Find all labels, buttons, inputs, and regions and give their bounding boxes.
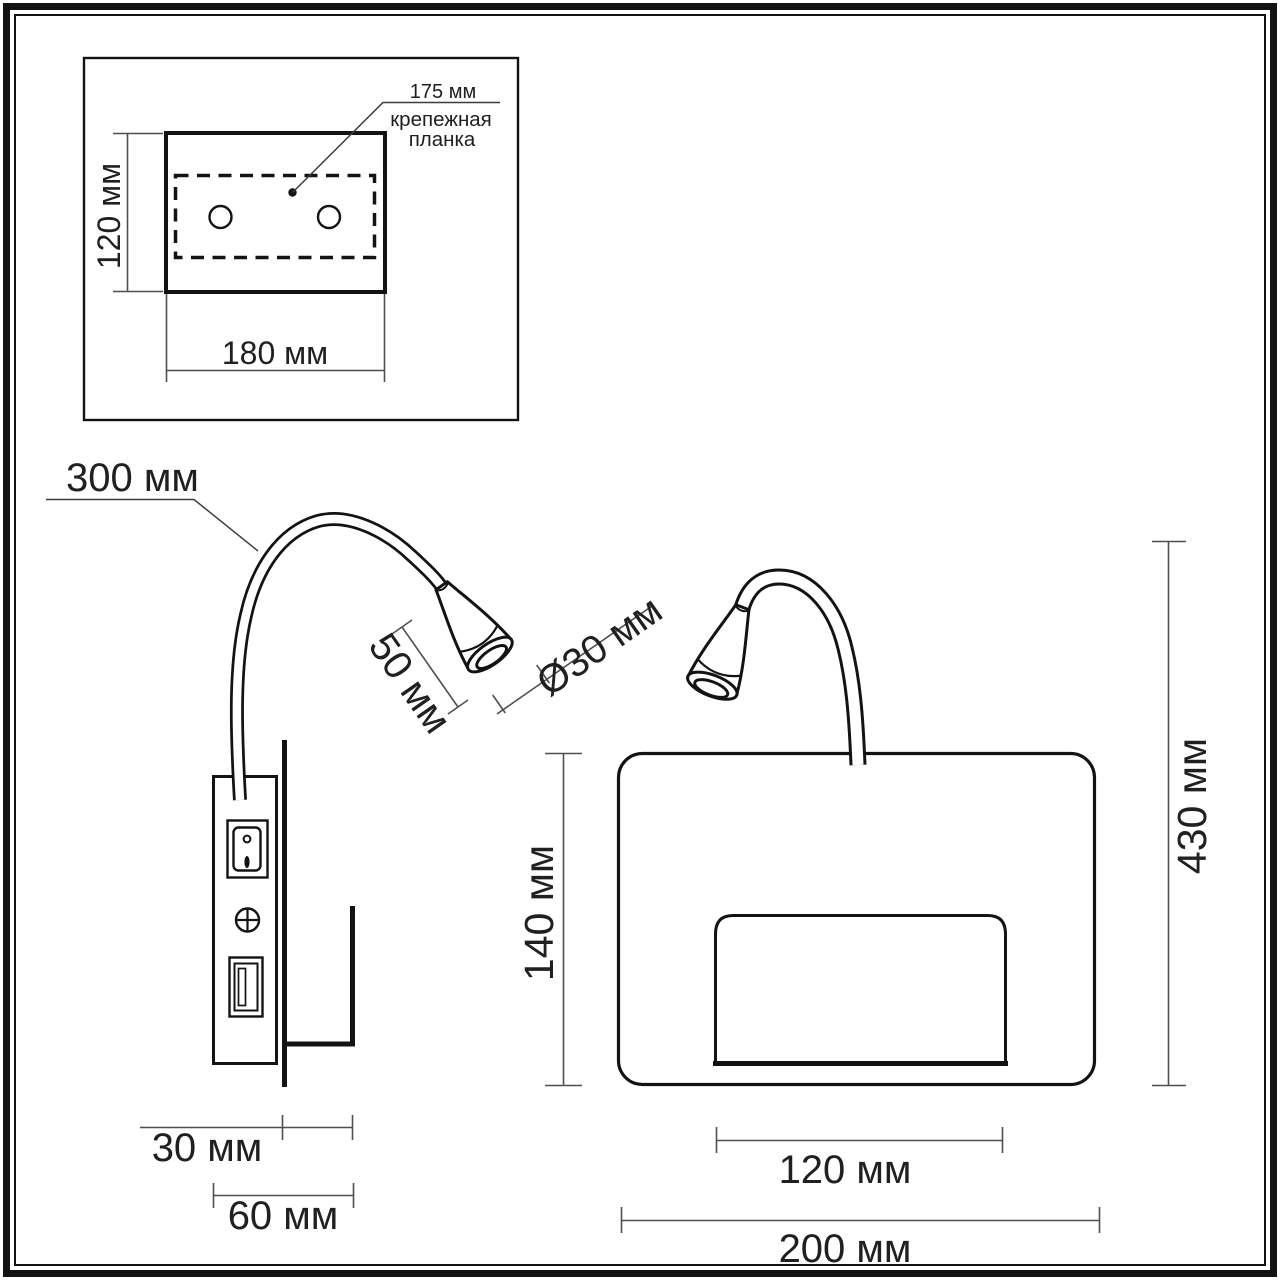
front-lamp-head [684,598,767,705]
overall-height-label: 430 мм [1169,738,1215,874]
body-width-dimension: 200 мм [621,1207,1100,1271]
total-depth-dimension: 60 мм [213,1183,354,1238]
inset-width-dimension: 180 мм [167,294,385,382]
wall-offset-dimension: 30 мм [140,1115,353,1170]
inset-height-dimension: 120 мм [91,134,163,292]
inset-height-label: 120 мм [91,163,127,269]
gooseneck-leader-line [46,500,258,552]
wall-lamp-dimension-drawing: 175 мм крепежная планка 120 мм 180 мм 30… [0,0,1280,1280]
gooseneck-length-label: 300 мм [66,456,199,500]
switch-line-mark [244,856,249,868]
shelf-bracket [286,906,353,1044]
body-height-dimension: 140 мм [516,754,582,1087]
switch-dot-mark [244,836,251,843]
head-length-label: 50 мм [360,626,459,742]
usb-port [230,958,263,1017]
mount-bar-caption-2: планка [409,128,476,151]
front-recess [713,916,1008,1064]
power-switch [228,821,268,878]
body-width-label: 200 мм [779,1227,912,1271]
head-diameter-label: Ø30 мм [529,588,670,705]
total-depth-label: 60 мм [228,1194,339,1238]
wall-offset-label: 30 мм [152,1126,263,1170]
mounting-plate-inset: 175 мм крепежная планка 120 мм 180 мм [84,58,518,420]
mount-bar-length-label: 175 мм [410,81,476,103]
overall-height-dimension: 430 мм [1152,541,1215,1086]
backplate-outline [166,133,385,292]
recess-width-label: 120 мм [779,1148,912,1192]
usb-tongue [239,969,246,1006]
inset-width-label: 180 мм [222,335,328,371]
front-gooseneck [741,577,858,765]
recess-width-dimension: 120 мм [716,1127,1003,1192]
technical-drawing-page: 175 мм крепежная планка 120 мм 180 мм 30… [0,0,1280,1280]
side-view: 300 мм [46,456,670,1238]
head-diameter-dimension: Ø30 мм [493,588,671,714]
mounting-screw [236,909,259,932]
body-height-label: 140 мм [516,845,562,981]
head-length-dimension: 50 мм [360,620,468,741]
